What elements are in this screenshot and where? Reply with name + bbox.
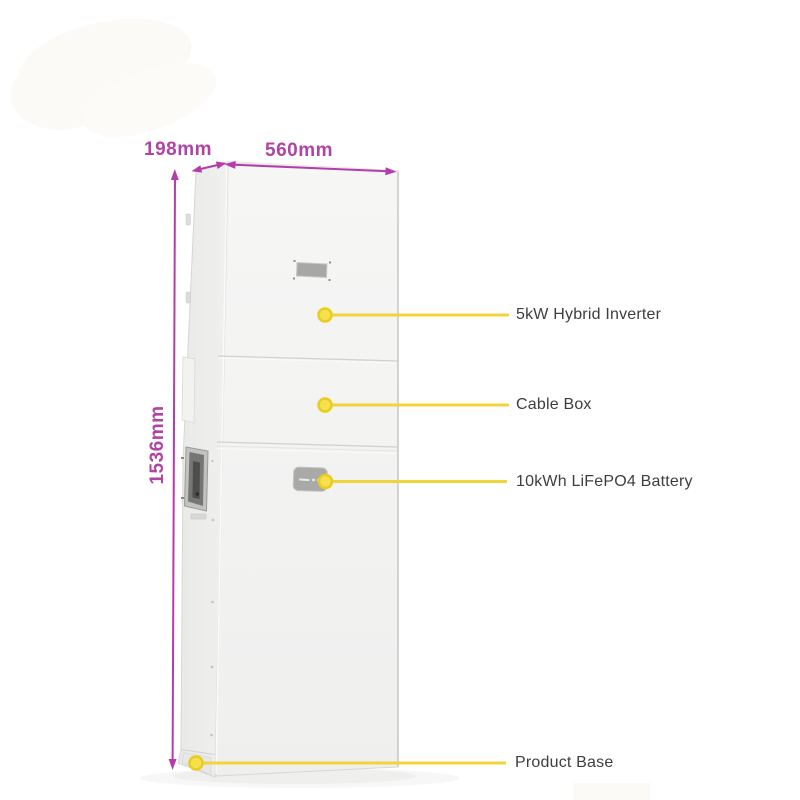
dimension-label-width: 560mm: [265, 140, 333, 162]
callout-label-base: Product Base: [515, 754, 613, 772]
dimension-label-height: 1536mm: [147, 405, 169, 484]
callout-dot-cable-box: [319, 399, 332, 412]
energy-storage-cabinet-illustration: [0, 0, 800, 800]
callout-label-battery: 10kWh LiFePO4 Battery: [516, 473, 693, 491]
product-spec-diagram: 198mm 560mm 1536mm 5kW Hybrid Inverter C…: [0, 0, 800, 800]
dimension-label-depth: 198mm: [144, 139, 212, 161]
callout-dot-inverter: [319, 309, 332, 322]
callout-label-cable-box: Cable Box: [516, 396, 592, 414]
cabinet-body: [178, 162, 398, 778]
callout-dot-base: [190, 757, 203, 770]
callout-dot-battery: [319, 475, 332, 488]
callout-label-inverter: 5kW Hybrid Inverter: [516, 306, 661, 324]
height-dimension-arrow: [169, 169, 179, 770]
